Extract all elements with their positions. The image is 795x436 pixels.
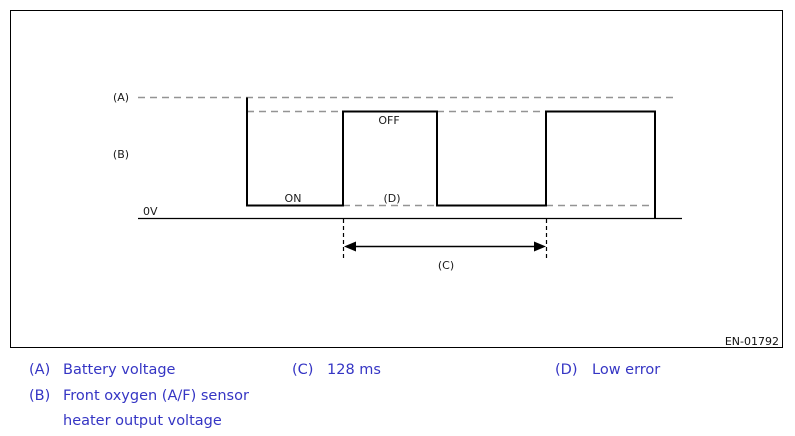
figure-canvas: (A) (B) 0V ON OFF (D) (C) EN-01792 (A) B… bbox=[0, 0, 795, 436]
legend-text-a: Battery voltage bbox=[63, 362, 175, 378]
legend-key-b: (B) bbox=[29, 388, 50, 404]
legend: (A) Battery voltage (C) 128 ms (D) Low e… bbox=[0, 0, 795, 436]
legend-text-c: 128 ms bbox=[327, 362, 381, 378]
legend-key-c: (C) bbox=[292, 362, 313, 378]
legend-text-b-line1: Front oxygen (A/F) sensor bbox=[63, 388, 249, 404]
legend-key-a: (A) bbox=[29, 362, 50, 378]
legend-key-d: (D) bbox=[555, 362, 577, 378]
legend-text-d: Low error bbox=[592, 362, 660, 378]
legend-text-b-line2: heater output voltage bbox=[63, 413, 222, 429]
